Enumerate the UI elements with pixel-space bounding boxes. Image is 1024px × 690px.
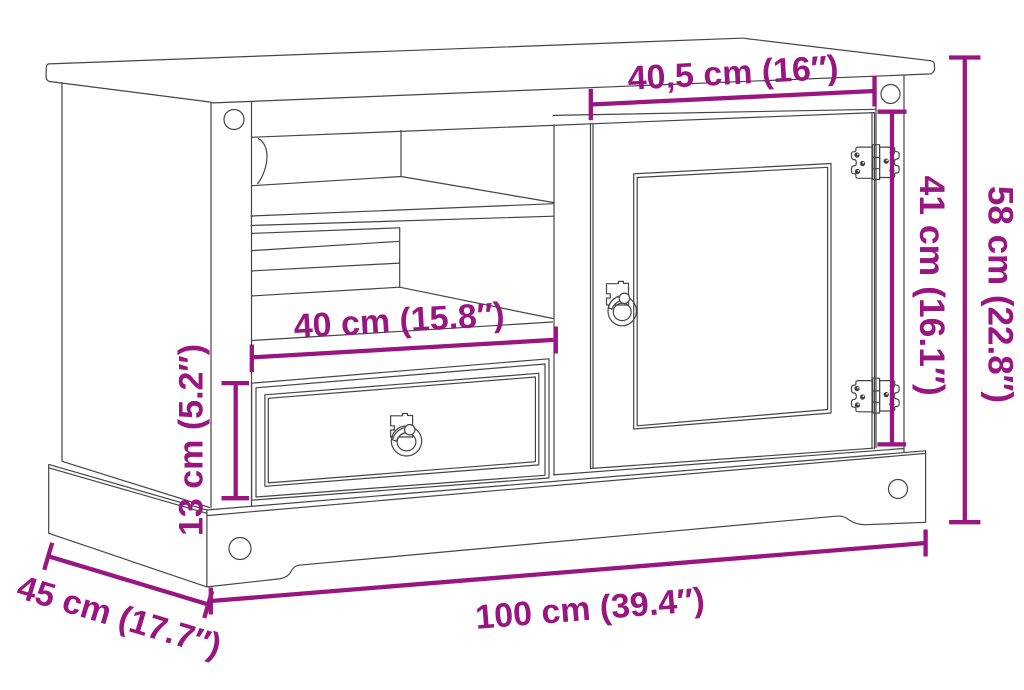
svg-text:100 cm (39.4″): 100 cm (39.4″) [474, 581, 706, 637]
svg-text:13 cm (5.2″): 13 cm (5.2″) [172, 344, 210, 536]
svg-text:58 cm (22.8″): 58 cm (22.8″) [980, 186, 1019, 403]
svg-text:41 cm (16.1″): 41 cm (16.1″) [912, 176, 952, 396]
svg-text:40 cm (15.8″): 40 cm (15.8″) [293, 296, 506, 346]
svg-text:40,5 cm (16″): 40,5 cm (16″) [627, 49, 840, 98]
